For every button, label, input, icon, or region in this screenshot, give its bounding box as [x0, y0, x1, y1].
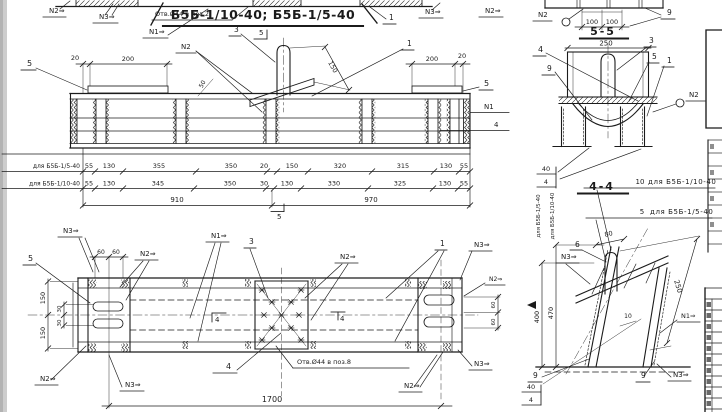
note-for-1-5: для Б5Б-1/5-40 — [650, 208, 713, 216]
section-cut-5-top: 5 — [259, 29, 263, 37]
part-1-55: 1 — [667, 56, 672, 65]
dim-20-left: 20 — [71, 54, 79, 62]
sheet-edge-fragments — [705, 30, 722, 412]
mark-n2-plan-mid: N2⇒ — [340, 253, 356, 261]
dimension-table: для Б5Б-1/5-40 для Б5Б-1/10-40 55 130 35… — [2, 148, 473, 221]
part-3-elevation: 3 — [234, 25, 239, 34]
part-1-elevation: 1 — [407, 39, 412, 48]
mark-n3-plan-tr: N3⇒ — [474, 241, 490, 249]
row1-v2: 355 — [153, 162, 165, 170]
variant-label-15: для Б5Б-1/5-40 — [536, 194, 542, 238]
mark-n2-plan-fl: N2⇒ — [40, 375, 56, 383]
mark-n3-plan-bl: N3⇒ — [125, 381, 141, 389]
note-holes-pos8: Отв.Ø44 в поз.8 — [297, 358, 351, 366]
part-5-left: 5 — [27, 59, 32, 68]
mark-n2-plan-bottom: N2⇒ — [404, 382, 420, 390]
row2-v8: 130 — [439, 180, 451, 188]
part-9-55: 9 — [547, 64, 552, 73]
cut-4-top: 4 — [544, 178, 548, 186]
row2-v9: 55 — [460, 180, 468, 188]
row1-v9: 55 — [460, 162, 468, 170]
mark-n1-44: N1⇒ — [681, 312, 696, 320]
dim-400: 400 — [533, 311, 541, 323]
part-5-plan: 5 — [28, 254, 33, 263]
part-6-44: 6 — [575, 240, 580, 249]
dim-30-a: 30 — [57, 305, 63, 312]
row2-v5: 130 — [281, 180, 293, 188]
dim-200-left: 200 — [122, 55, 134, 63]
row2-v3: 350 — [224, 180, 236, 188]
section-44-title: 4-4 — [589, 180, 615, 193]
dim-10: 10 — [624, 313, 632, 320]
section-cut-5-bottom: 5 — [277, 213, 281, 221]
row1-v7: 315 — [397, 162, 409, 170]
dim-80: 80 — [604, 229, 614, 239]
mark-n1: N1⇒ — [149, 28, 165, 36]
row2-v2: 345 — [152, 180, 164, 188]
section-55-title: 5-5 — [590, 25, 616, 38]
row1-v0: 55 — [85, 162, 93, 170]
row1-v1: 130 — [103, 162, 115, 170]
mark-n2: N2⇒ — [49, 7, 65, 15]
part-9-44b: 9 — [641, 371, 646, 380]
cut-4-plan-right: 4 — [340, 315, 345, 323]
part-4-plan: 4 — [226, 362, 231, 371]
mark-n2-weld: N2 — [538, 11, 548, 19]
row2-v7: 325 — [394, 180, 406, 188]
part-4-55: 4 — [538, 45, 543, 54]
part-5-55: 5 — [652, 52, 657, 61]
plan-view: 4 4 60 60 150 150 30 30 60 60 N3⇒ — [23, 227, 505, 409]
elevation-view: 20 200 200 20 5 5 1 150 — [21, 25, 509, 148]
dim-1700: 1700 — [262, 395, 282, 404]
mark-n2-plan-right: N2⇒ — [489, 276, 502, 283]
drawing-sheet: N2⇒ N3⇒ Отв.Ø44 в поз.2 N1⇒ Б5Б-1/10-40;… — [0, 0, 722, 412]
mark-n3-44a: N3⇒ — [561, 253, 577, 261]
part-5-right: 5 — [484, 79, 489, 88]
engineering-drawing: N2⇒ N3⇒ Отв.Ø44 в поз.2 N1⇒ Б5Б-1/10-40;… — [0, 0, 722, 412]
note-qty10: 10 — [636, 178, 645, 186]
dim-30-b: 30 — [57, 319, 63, 326]
dim-50: 50 — [198, 79, 208, 89]
dim-20-right: 20 — [458, 52, 466, 60]
row2-v1: 130 — [103, 180, 115, 188]
row2-v4: 30 — [260, 180, 268, 188]
dim-60-right-b: 60 — [491, 318, 497, 325]
part-4-elevation: 4 — [494, 121, 499, 129]
mark-n1-plain: N1 — [484, 103, 494, 111]
stiffeners — [93, 99, 459, 144]
row1-v4: 20 — [260, 162, 268, 170]
row2-v6: 330 — [328, 180, 340, 188]
note-qty5: 5 — [640, 208, 644, 216]
mark-n3-plan-br: N3⇒ — [474, 360, 490, 368]
dim-200-right: 200 — [426, 55, 438, 63]
variant-label-110: для Б5Б-1/10-40 — [550, 192, 556, 239]
part-9-top: 9 — [667, 8, 672, 17]
cut-40-bottom: 40 — [527, 383, 535, 391]
part-1-top: 1 — [389, 13, 394, 22]
mark-n3-plan-tl: N3⇒ — [63, 227, 79, 235]
total-right: 970 — [364, 196, 377, 204]
mark-n2-55: N2 — [689, 91, 699, 99]
dim-60-top-a: 60 — [97, 249, 105, 256]
mark-n3-44b: N3⇒ — [673, 371, 689, 379]
row1-v6: 320 — [334, 162, 346, 170]
cut-4-plan-left: 4 — [215, 316, 220, 324]
mark-n1-plan: N1⇒ — [211, 232, 227, 240]
drawing-title: Б5Б-1/10-40; Б5Б-1/5-40 — [171, 7, 356, 22]
cut-4-bottom: 4 — [529, 396, 533, 404]
mark-n2-b: N2⇒ — [485, 7, 501, 15]
part-3-55: 3 — [649, 36, 654, 45]
part-9-44a: 9 — [533, 371, 538, 380]
note-for-1-10: для Б5Б-1/10-40 — [648, 178, 717, 186]
dim-250-55: 250 — [599, 40, 612, 48]
row1-v3: 350 — [225, 162, 237, 170]
section-4-4-view: для Б5Б-1/5-40 для Б5Б-1/10-40 80 250 — [522, 192, 700, 405]
dim-470: 470 — [547, 307, 555, 319]
dim-150-plan-a: 150 — [39, 292, 47, 304]
part-1-plan: 1 — [440, 239, 445, 248]
dim-150-elevation: 150 — [326, 60, 339, 75]
row1-v5: 150 — [286, 162, 298, 170]
mark-n2-elevation: N2 — [181, 43, 191, 51]
top-view-strip — [56, 0, 663, 8]
row1-v8: 130 — [440, 162, 452, 170]
dim-150-plan-b: 150 — [39, 327, 47, 339]
section-5-5: 5-5 250 4 9 3 — [533, 25, 705, 147]
level-arrow-icon — [527, 301, 536, 309]
dim-250-44: 250 — [672, 279, 683, 294]
part-3-plan: 3 — [249, 237, 254, 246]
row2-label: для Б5Б-1/10-40 — [29, 181, 80, 188]
scan-edge — [0, 0, 7, 412]
dim-60-top-b: 60 — [112, 249, 120, 256]
total-left: 910 — [170, 196, 183, 204]
mark-n2-plan-tl: N2⇒ — [140, 250, 156, 258]
row1-label: для Б5Б-1/5-40 — [33, 163, 80, 170]
weld-circle-icon-55 — [676, 99, 684, 107]
dim-60-right-a: 60 — [491, 301, 497, 308]
row2-v0: 55 — [85, 180, 93, 188]
cut-40-top: 40 — [542, 165, 550, 173]
